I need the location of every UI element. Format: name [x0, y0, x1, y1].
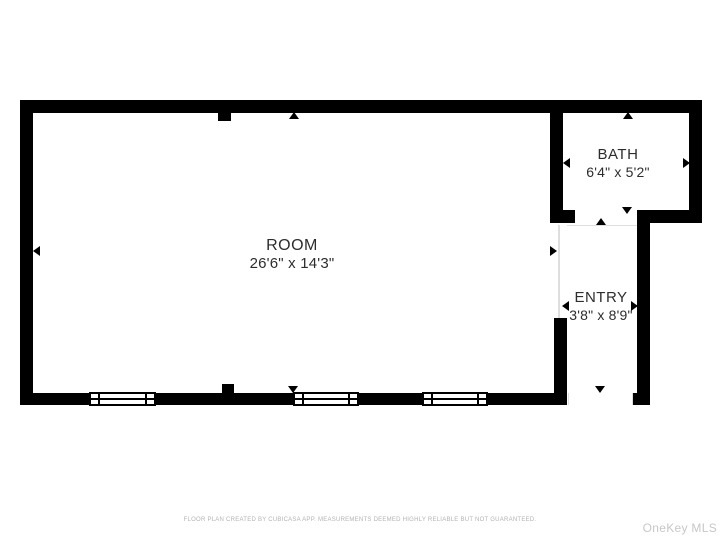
entry-width-marker-left-icon	[562, 301, 569, 311]
entry-door-opening-right-line	[632, 393, 633, 405]
watermark: OneKey MLS	[643, 521, 717, 535]
wall-stub-icon	[218, 112, 231, 121]
wall-entry-left	[554, 318, 567, 405]
wall-entry-right	[637, 210, 650, 405]
window	[89, 392, 156, 406]
entry-door-marker-down-icon	[595, 386, 605, 393]
room-entry-opening-line	[558, 225, 560, 318]
bath-door-marker-down-icon	[622, 207, 632, 214]
bath-entry-opening-line	[567, 225, 637, 226]
wall-bath-left	[550, 100, 563, 223]
opening-marker-left-icon	[563, 158, 570, 168]
wall-top	[20, 100, 702, 113]
window	[422, 392, 488, 406]
floor-plan-canvas: ROOM 26'6" x 14'3" BATH 6'4" x 5'2" ENTR…	[0, 0, 720, 540]
opening-marker-up-icon	[623, 112, 633, 119]
room-dimensions: 26'6" x 14'3"	[250, 255, 335, 273]
opening-marker-right-icon	[683, 158, 690, 168]
opening-marker-up-icon	[289, 112, 299, 119]
bath-door-marker-up-icon	[596, 218, 606, 225]
wall-left	[20, 100, 33, 405]
footer-disclaimer: FLOOR PLAN CREATED BY CUBICASA APP. MEAS…	[0, 517, 720, 523]
room-name: ENTRY	[569, 289, 632, 307]
wall-bath-bottom-left-stub	[550, 210, 575, 223]
entry-door-opening-left-line	[568, 393, 569, 405]
window	[293, 392, 359, 406]
room-name: ROOM	[250, 236, 335, 255]
opening-marker-down-icon	[288, 386, 298, 393]
opening-marker-right-icon	[550, 246, 557, 256]
room-label-room: ROOM 26'6" x 14'3"	[250, 236, 335, 273]
room-dimensions: 6'4" x 5'2"	[586, 164, 649, 181]
wall-right	[689, 100, 702, 223]
room-name: BATH	[586, 146, 649, 164]
room-dimensions: 3'8" x 8'9"	[569, 307, 632, 324]
window-frame-line	[424, 398, 486, 400]
room-label-bath: BATH 6'4" x 5'2"	[586, 146, 649, 181]
room-label-entry: ENTRY 3'8" x 8'9"	[569, 289, 632, 324]
window-frame-line	[295, 398, 357, 400]
wall-entry-bottom-corner	[633, 393, 650, 405]
opening-marker-left-icon	[33, 246, 40, 256]
wall-stub-icon	[222, 384, 234, 393]
window-frame-line	[91, 398, 154, 400]
